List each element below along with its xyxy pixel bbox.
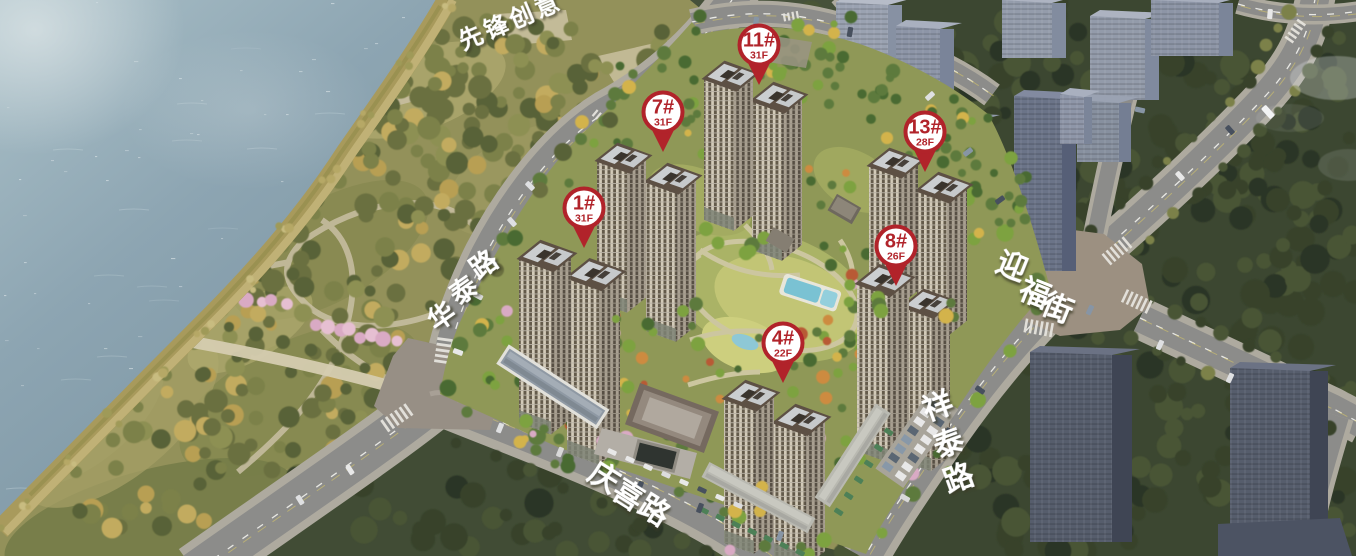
svg-text:22F: 22F	[774, 348, 793, 360]
svg-text:1#: 1#	[573, 193, 595, 215]
svg-text:11#: 11#	[743, 30, 775, 52]
svg-text:26F: 26F	[887, 251, 906, 263]
svg-text:31F: 31F	[750, 50, 769, 62]
svg-text:4#: 4#	[772, 328, 794, 350]
svg-text:31F: 31F	[654, 117, 673, 129]
svg-text:8#: 8#	[885, 231, 907, 253]
svg-text:7#: 7#	[652, 97, 674, 119]
svg-text:28F: 28F	[916, 137, 935, 149]
svg-text:13#: 13#	[908, 117, 941, 139]
svg-text:31F: 31F	[575, 213, 594, 225]
